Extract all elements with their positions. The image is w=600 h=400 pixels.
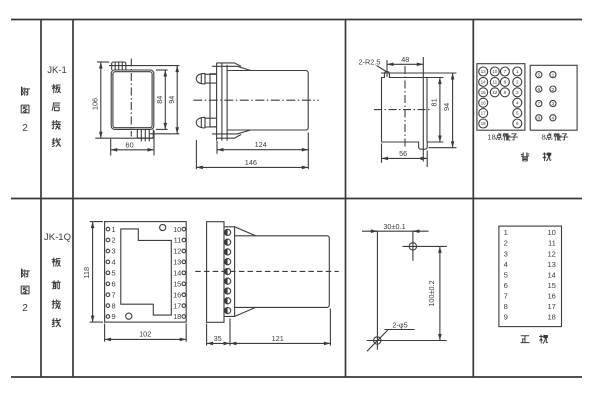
svg-text:146: 146 <box>245 158 257 167</box>
svg-text:4: 4 <box>516 100 519 105</box>
svg-text:18: 18 <box>487 132 495 141</box>
svg-text:60: 60 <box>126 140 134 149</box>
svg-text:118: 118 <box>82 267 91 279</box>
svg-text:6: 6 <box>537 87 540 93</box>
svg-text:12: 12 <box>547 249 555 258</box>
svg-text:9: 9 <box>504 313 508 322</box>
svg-text:8: 8 <box>112 301 116 310</box>
svg-text:7: 7 <box>504 69 507 74</box>
svg-text:14: 14 <box>481 80 487 85</box>
svg-text:7: 7 <box>537 101 540 107</box>
svg-text:5: 5 <box>516 111 519 116</box>
svg-text:11: 11 <box>492 80 497 85</box>
svg-text:16: 16 <box>173 290 181 299</box>
svg-text:2: 2 <box>516 80 519 85</box>
svg-text:7: 7 <box>504 291 508 300</box>
svg-text:10: 10 <box>173 225 181 234</box>
svg-text:94: 94 <box>442 103 451 111</box>
svg-text:4: 4 <box>552 116 555 122</box>
svg-text:106: 106 <box>90 98 99 110</box>
svg-text:15: 15 <box>173 279 181 288</box>
svg-text:6: 6 <box>112 279 116 288</box>
svg-text:17: 17 <box>481 111 487 116</box>
svg-text:81: 81 <box>429 98 438 106</box>
svg-text:2-φ5: 2-φ5 <box>392 321 407 330</box>
svg-text:2: 2 <box>112 236 116 245</box>
svg-text:2: 2 <box>552 87 555 93</box>
svg-text:16: 16 <box>481 100 487 105</box>
svg-text:13: 13 <box>173 258 181 267</box>
svg-text:12: 12 <box>492 90 498 95</box>
svg-text:11: 11 <box>548 239 556 248</box>
svg-text:14: 14 <box>547 270 555 279</box>
svg-text:5: 5 <box>504 270 508 279</box>
svg-text:6: 6 <box>504 281 508 290</box>
svg-text:3: 3 <box>516 90 519 95</box>
svg-text:17: 17 <box>547 302 555 311</box>
svg-text:5: 5 <box>112 269 116 278</box>
svg-text:94: 94 <box>167 96 176 104</box>
svg-text:10: 10 <box>492 69 498 74</box>
svg-text:48: 48 <box>401 55 409 64</box>
svg-text:35: 35 <box>214 334 222 343</box>
svg-text:3: 3 <box>112 247 116 256</box>
svg-text:3: 3 <box>504 249 508 258</box>
svg-text:5: 5 <box>537 72 540 78</box>
svg-text:8: 8 <box>537 116 540 122</box>
svg-text:2-R2.5: 2-R2.5 <box>359 58 381 67</box>
svg-text:11: 11 <box>174 236 182 245</box>
svg-text:1: 1 <box>504 228 508 237</box>
svg-text:100±0.2: 100±0.2 <box>427 280 436 306</box>
svg-text:18: 18 <box>173 312 181 321</box>
svg-text:13: 13 <box>547 260 555 269</box>
svg-text:12: 12 <box>173 247 181 256</box>
svg-text:8: 8 <box>504 80 507 85</box>
svg-text:30±0.1: 30±0.1 <box>383 222 405 231</box>
svg-text:2: 2 <box>22 123 28 134</box>
svg-text:84: 84 <box>155 96 164 104</box>
svg-text:13: 13 <box>481 69 487 74</box>
svg-text:121: 121 <box>272 334 284 343</box>
svg-text:2: 2 <box>504 239 508 248</box>
svg-text:15: 15 <box>481 90 487 95</box>
svg-text:3: 3 <box>552 101 555 107</box>
svg-text:9: 9 <box>504 90 507 95</box>
svg-text:15: 15 <box>547 281 555 290</box>
svg-text:8: 8 <box>541 132 545 141</box>
svg-text:56: 56 <box>399 149 407 158</box>
svg-text:10: 10 <box>547 228 555 237</box>
svg-text:JK-1Q: JK-1Q <box>44 232 71 243</box>
svg-text:18: 18 <box>481 121 487 126</box>
svg-text:6: 6 <box>516 121 519 126</box>
svg-text:18: 18 <box>547 313 555 322</box>
svg-text:17: 17 <box>173 301 181 310</box>
svg-text:2: 2 <box>22 303 28 314</box>
svg-text:9: 9 <box>112 312 116 321</box>
svg-text:16: 16 <box>547 291 555 300</box>
svg-text:8: 8 <box>504 302 508 311</box>
svg-text:4: 4 <box>112 258 116 267</box>
svg-text:7: 7 <box>112 290 116 299</box>
svg-text:14: 14 <box>173 269 181 278</box>
svg-text:1: 1 <box>552 72 555 78</box>
svg-text:102: 102 <box>139 330 151 339</box>
svg-text:4: 4 <box>504 260 508 269</box>
svg-text:124: 124 <box>255 140 267 149</box>
svg-text:1: 1 <box>112 225 116 234</box>
svg-text:1: 1 <box>516 69 519 74</box>
svg-text:JK-1: JK-1 <box>47 65 67 76</box>
